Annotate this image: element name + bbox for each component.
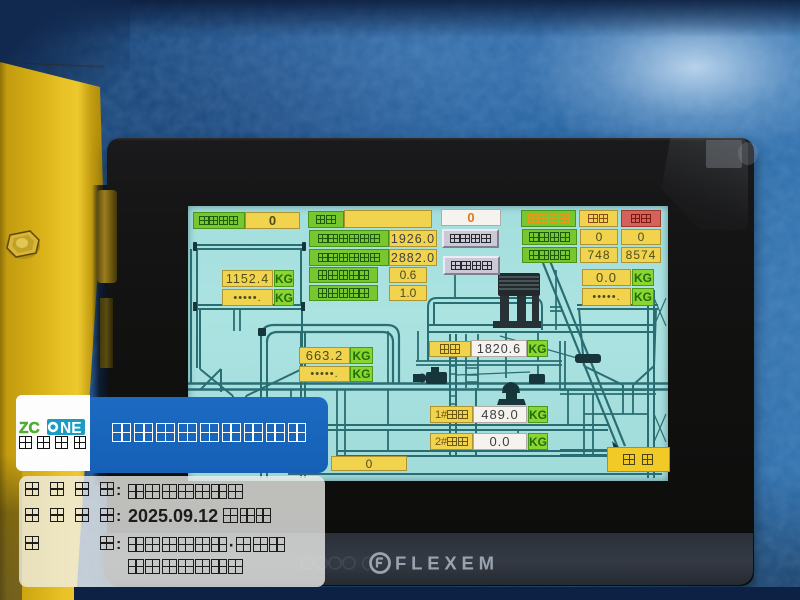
- svg-text:FLEXEM: FLEXEM: [395, 553, 499, 574]
- svg-text:NE: NE: [60, 420, 82, 435]
- svg-text:ZC: ZC: [19, 420, 40, 435]
